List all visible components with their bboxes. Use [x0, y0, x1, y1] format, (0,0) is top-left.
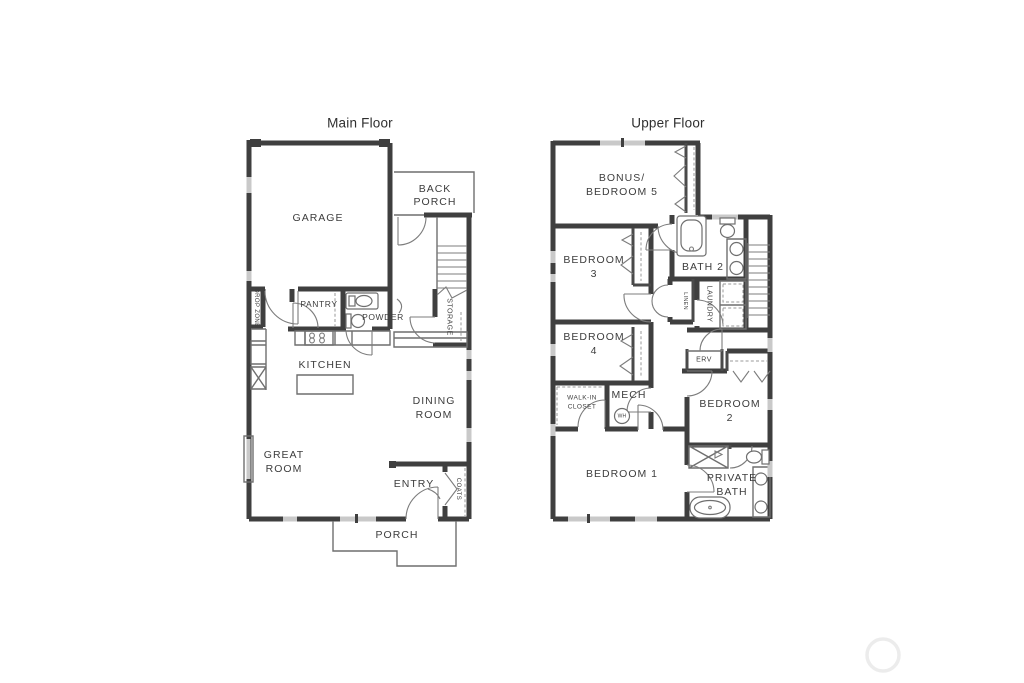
room-label-bath2: BATH 2 — [682, 261, 724, 273]
room-label-bedroom2-2: 2 — [727, 412, 734, 424]
wc-toilet-icon — [747, 450, 770, 464]
bath2-toilet-icon — [720, 218, 735, 238]
great-room-window — [244, 436, 253, 482]
room-label-bonus-2: BEDROOM 5 — [586, 186, 658, 198]
floor-plan-canvas: Main Floor GARAGE BACK PORCH STORAGE DRO… — [0, 0, 1024, 683]
room-label-bonus-1: BONUS/ — [599, 172, 645, 184]
room-label-dining-1: DINING — [413, 395, 456, 407]
room-label-walkin-2: CLOSET — [568, 404, 596, 411]
water-heater-label: WH — [618, 414, 627, 420]
room-label-kitchen: KITCHEN — [298, 359, 351, 371]
room-label-mech: MECH — [612, 389, 647, 401]
upper-stairs-treads — [748, 245, 770, 315]
main-floor-plan: Main Floor GARAGE BACK PORCH STORAGE DRO… — [244, 116, 474, 567]
bathtub-icon — [677, 216, 706, 256]
range-icon — [305, 331, 333, 345]
room-label-great-2: ROOM — [266, 463, 303, 475]
room-label-bedroom1: BEDROOM 1 — [586, 468, 658, 480]
freestanding-tub-icon — [690, 497, 730, 518]
room-label-bedroom3-2: 3 — [591, 268, 598, 280]
bath2-sinks-icon — [730, 243, 743, 275]
floor-plan-page: Main Floor GARAGE BACK PORCH STORAGE DRO… — [0, 0, 1024, 683]
room-label-great-1: GREAT — [264, 449, 304, 461]
title-main-floor: Main Floor — [327, 116, 393, 131]
room-label-erv: ERV — [696, 357, 712, 364]
room-label-private-bath-1: PRIVATE — [707, 472, 757, 484]
main-floor-thin-lines — [251, 172, 474, 566]
room-label-bedroom4-2: 4 — [591, 345, 598, 357]
room-label-storage: STORAGE — [446, 298, 453, 336]
room-label-walkin-1: WALK-IN — [567, 395, 597, 402]
water-heater-icon: WH — [615, 409, 630, 424]
powder-sink-icon — [346, 293, 378, 309]
room-label-porch: PORCH — [376, 529, 419, 541]
room-label-laundry: LAUNDRY — [706, 286, 713, 323]
room-label-back-porch-2: PORCH — [414, 196, 457, 208]
title-upper-floor: Upper Floor — [631, 116, 705, 131]
room-label-private-bath-2: BATH — [716, 486, 747, 498]
room-label-pantry: PANTRY — [300, 299, 337, 309]
room-label-bedroom2-1: BEDROOM — [699, 398, 760, 410]
room-label-linen: LINEN — [682, 292, 688, 310]
room-label-bedroom3-1: BEDROOM — [563, 254, 624, 266]
room-label-powder: POWDER — [362, 312, 404, 322]
room-label-drop-zone: DROP ZONE — [253, 288, 259, 327]
room-label-coats: COATS — [455, 478, 461, 500]
room-label-bedroom4-1: BEDROOM — [563, 331, 624, 343]
room-label-back-porch-1: BACK — [419, 183, 452, 195]
watermark-logo — [867, 639, 899, 671]
room-label-garage: GARAGE — [293, 212, 344, 224]
room-label-dining-2: ROOM — [416, 409, 453, 421]
main-stairs-treads — [437, 246, 467, 298]
room-label-entry: ENTRY — [394, 478, 434, 490]
upper-floor-plan: WH Upper Floor BONUS/ BEDROOM 5 BEDROOM … — [551, 116, 773, 524]
